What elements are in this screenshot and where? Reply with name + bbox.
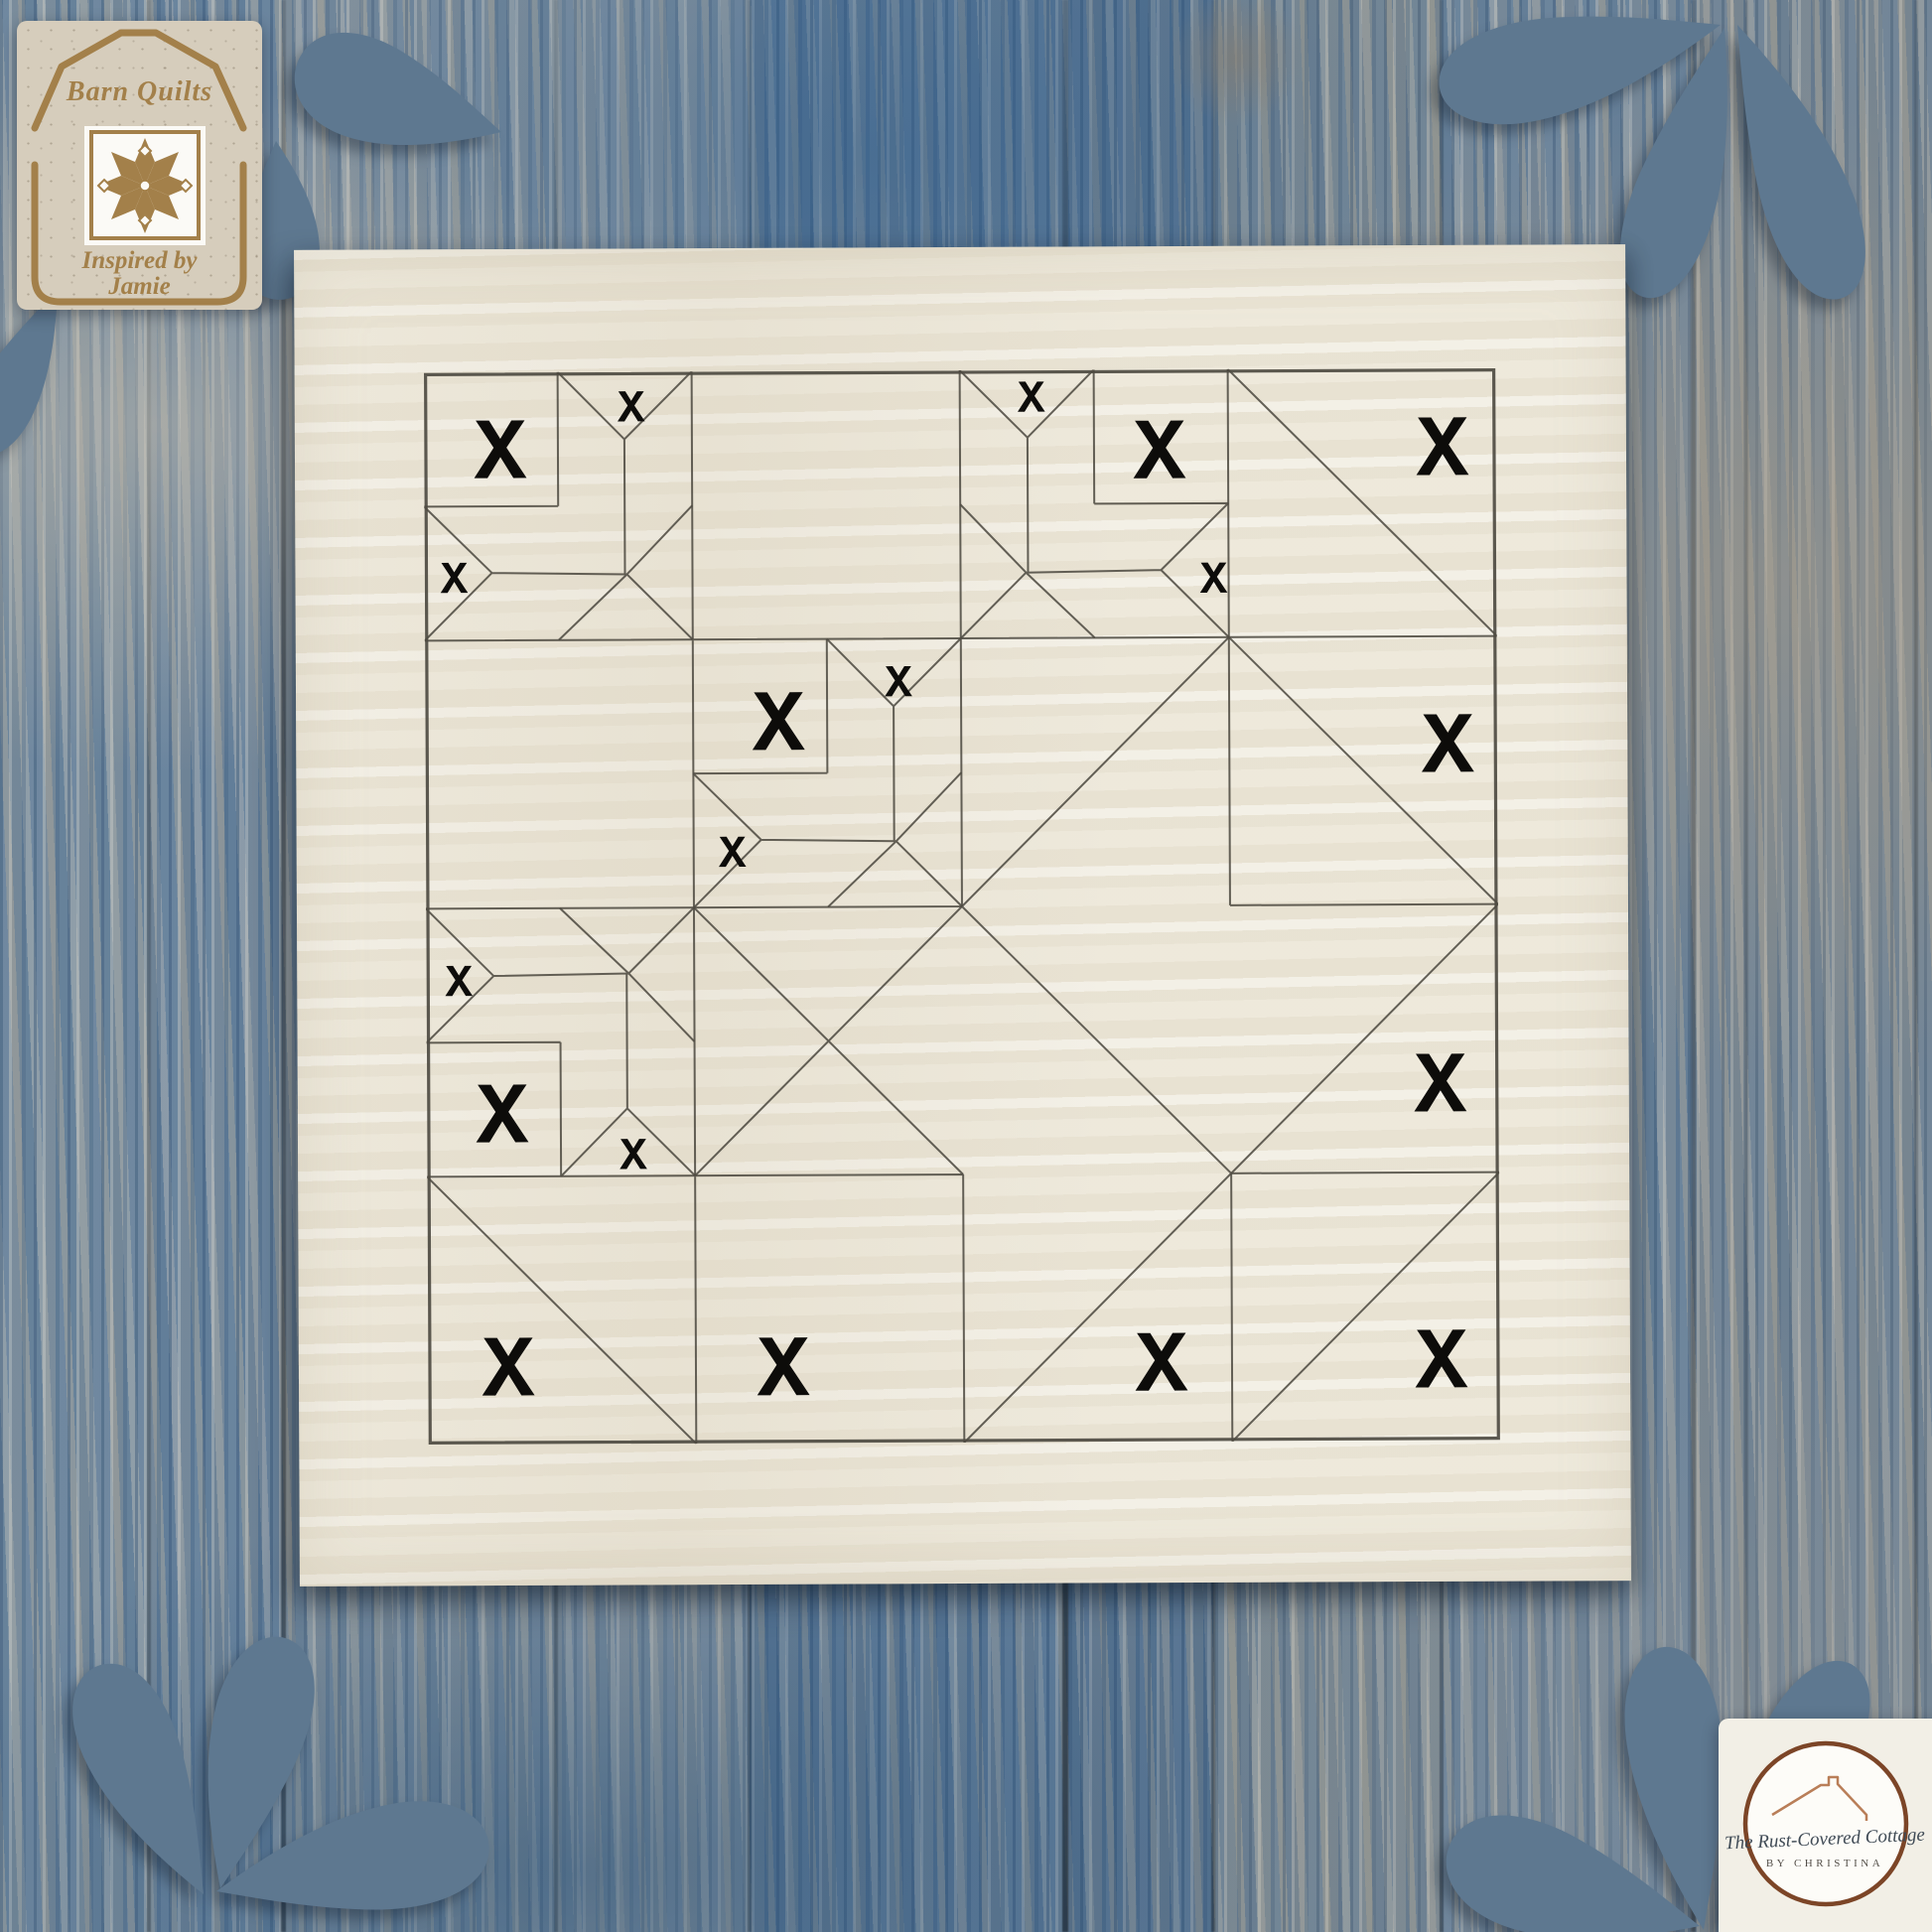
x-mark-hst-north-east: X xyxy=(1416,403,1468,501)
leaf-block-north-east xyxy=(960,369,1229,638)
x-mark-corner-south-east: X xyxy=(1415,1315,1467,1414)
cottage-logo-ring xyxy=(1745,1743,1906,1904)
x-mark-leaf-nw-notch-top: X xyxy=(618,383,645,435)
quilt-board: XXXXXXXXXXXXXXXXXXX xyxy=(294,244,1631,1587)
product-photo-scene: XXXXXXXXXXXXXXXXXXX xyxy=(0,0,1932,1932)
cottage-logo-card: The Rust-Covered Cottage BY CHRISTINA xyxy=(1719,1719,1932,1932)
x-mark-leaf-nw-square: X xyxy=(474,406,526,504)
x-mark-corner-south-west: X xyxy=(482,1323,534,1422)
x-mark-leaf-center-square: X xyxy=(753,678,805,776)
x-mark-leaf-west-notch-left: X xyxy=(445,958,473,1010)
x-marks-layer: XXXXXXXXXXXXXXXXXXX xyxy=(440,372,1477,1424)
x-mark-bottom-center-left: X xyxy=(757,1323,809,1422)
x-mark-leaf-ne-notch-right: X xyxy=(1200,555,1228,607)
quilt-pattern-lines xyxy=(424,368,1501,1446)
quilt-star-icon xyxy=(84,126,206,245)
quilt-pattern-svg: XXXXXXXXXXXXXXXXXXX xyxy=(424,368,1501,1446)
barn-logo-subtitle-line1: Inspired by xyxy=(17,247,262,275)
x-mark-hst-east: X xyxy=(1422,700,1474,798)
x-mark-bottom-center-right: X xyxy=(1135,1319,1187,1418)
x-mark-leaf-west-notch-bottom: X xyxy=(620,1131,647,1182)
leaf-block-west xyxy=(426,907,695,1176)
x-mark-leaf-center-notch-left: X xyxy=(719,829,747,881)
x-mark-leaf-ne-square: X xyxy=(1133,407,1185,505)
x-mark-leaf-ne-notch-top: X xyxy=(1018,374,1045,426)
x-mark-leaf-center-notch-top: X xyxy=(885,658,912,710)
barn-logo-subtitle-line2: Jamie xyxy=(17,273,262,301)
cottage-logo-subtitle: BY CHRISTINA xyxy=(1719,1858,1931,1869)
x-mark-hst-south-east-upper: X xyxy=(1414,1039,1466,1138)
x-mark-leaf-nw-notch-left: X xyxy=(441,555,469,607)
x-mark-leaf-west-square: X xyxy=(476,1070,528,1169)
barn-quilts-logo-card: Barn Quilts Inspired by Jamie xyxy=(17,21,262,310)
barn-logo-title: Barn Quilts xyxy=(17,76,262,108)
